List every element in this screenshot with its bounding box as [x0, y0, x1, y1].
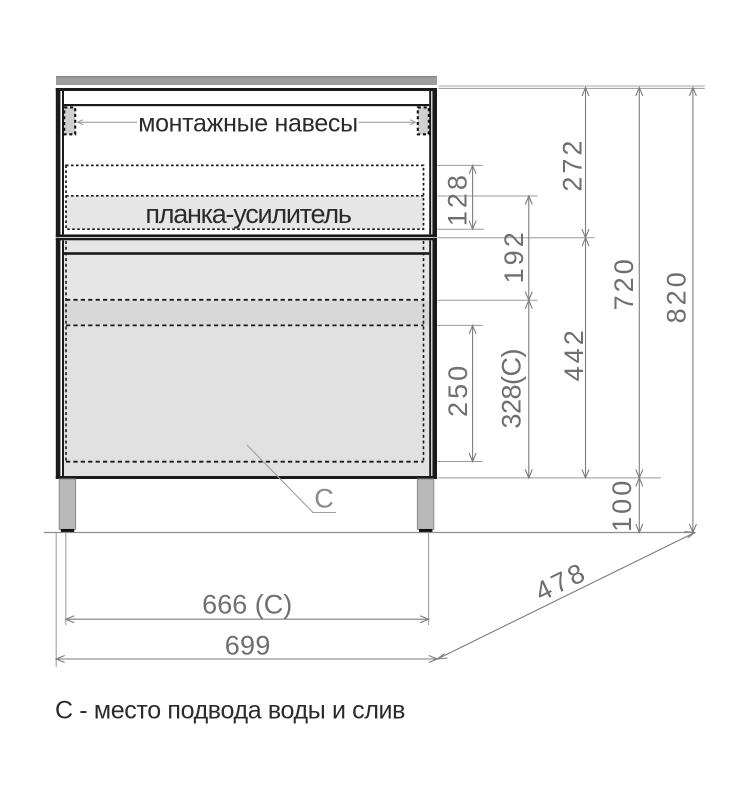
- svg-text:монтажные навесы: монтажные навесы: [138, 110, 358, 138]
- svg-text:720: 720: [609, 256, 639, 310]
- svg-text:128: 128: [443, 172, 473, 226]
- svg-text:192: 192: [499, 229, 529, 283]
- svg-text:699: 699: [225, 631, 271, 661]
- svg-text:820: 820: [662, 269, 692, 323]
- svg-text:666 (С): 666 (С): [202, 589, 292, 619]
- svg-text:100: 100: [607, 478, 637, 532]
- svg-text:442: 442: [559, 327, 589, 381]
- svg-text:С: С: [314, 484, 334, 514]
- svg-text:250: 250: [443, 363, 473, 417]
- svg-text:328(С): 328(С): [496, 349, 526, 429]
- svg-text:478: 478: [530, 556, 592, 607]
- svg-text:планка-усилитель: планка-усилитель: [145, 199, 351, 229]
- svg-text:272: 272: [558, 138, 588, 192]
- svg-text:С - место подвода воды и слив: С - место подвода воды и слив: [55, 697, 405, 725]
